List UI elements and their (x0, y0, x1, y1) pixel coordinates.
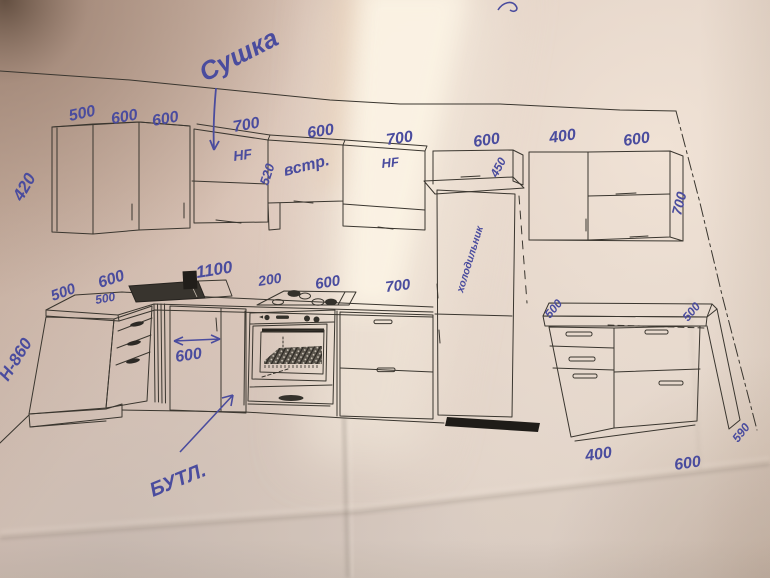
svg-text:НF: НF (232, 145, 253, 164)
svg-text:НF: НF (381, 154, 401, 171)
svg-text:700: 700 (384, 276, 412, 296)
